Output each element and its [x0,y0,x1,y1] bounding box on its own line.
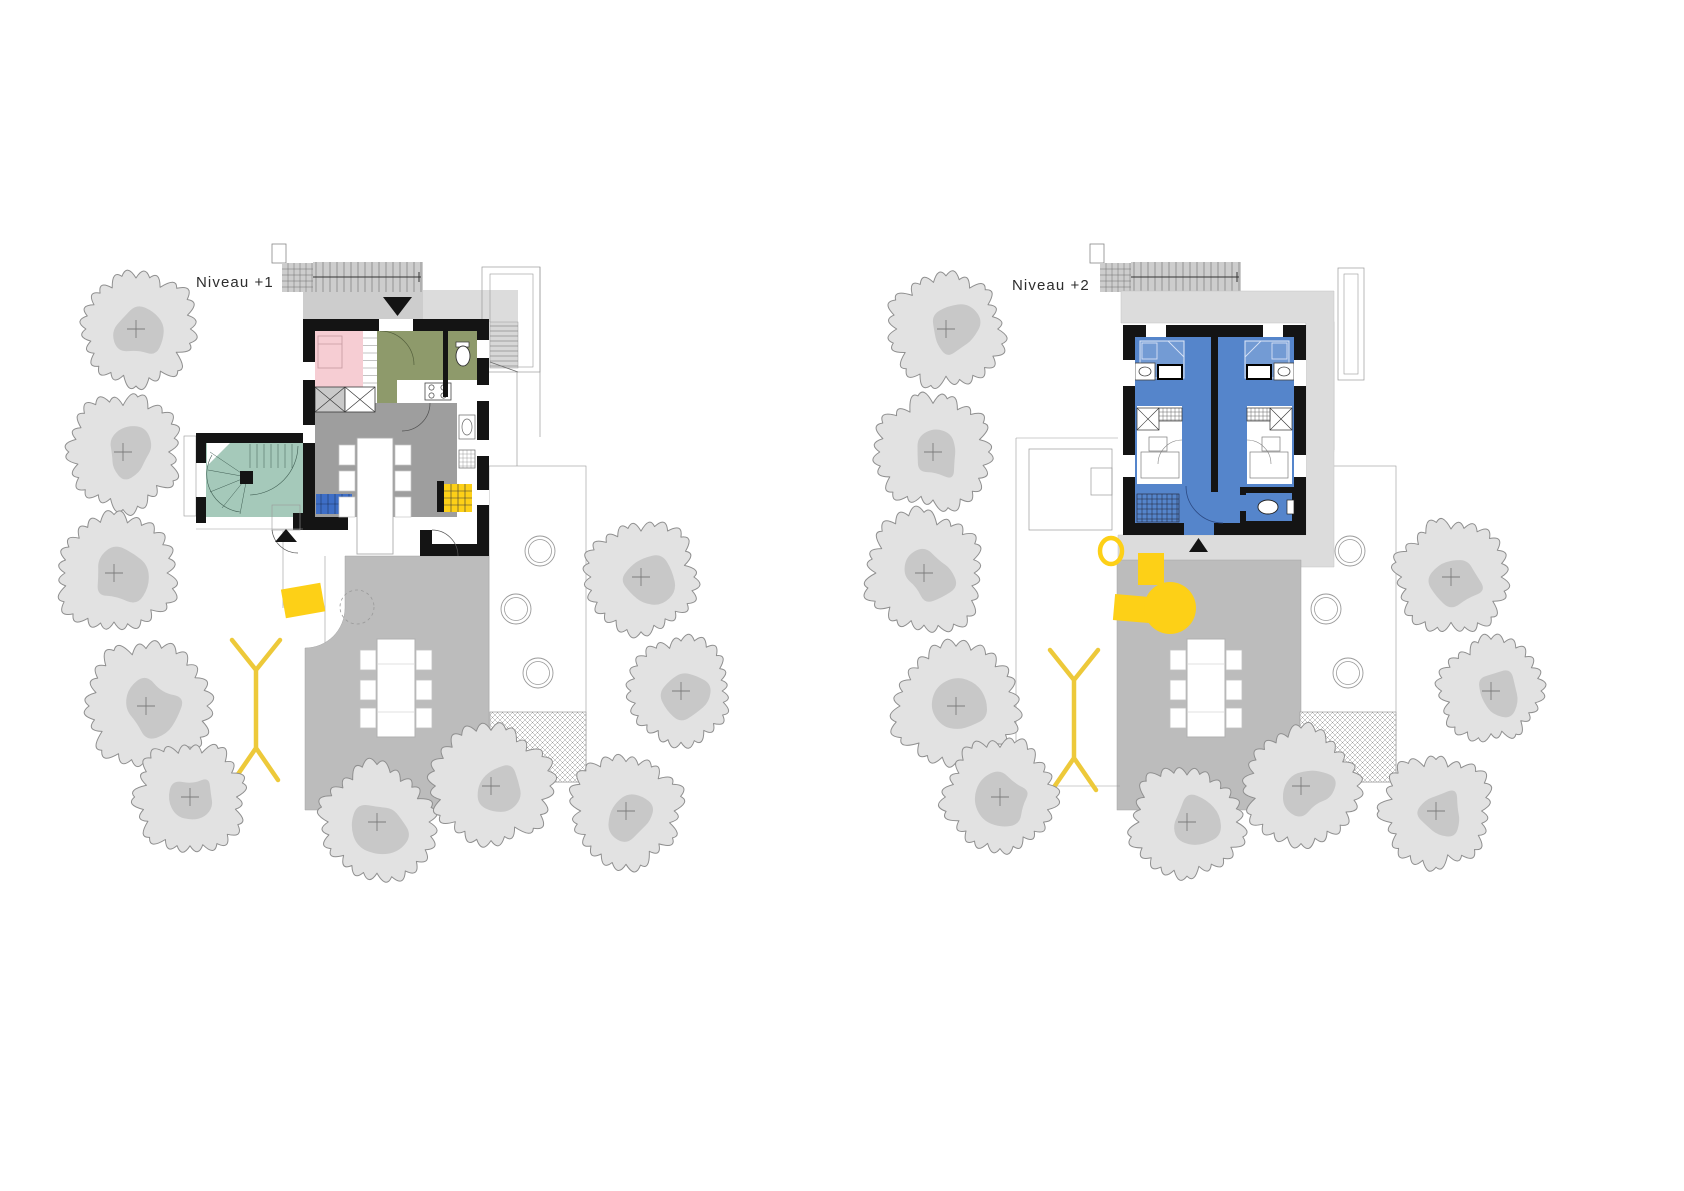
plan-label-niveau-1: Niveau +1 [196,274,274,291]
tree [1435,634,1546,742]
clothesline-play-structure [232,640,280,780]
tree [569,754,684,872]
site-plan-niveau-1 [58,244,728,882]
bathroom [1240,487,1298,527]
clothesline-play-structure [1050,650,1098,790]
site-plan-niveau-2 [864,244,1546,880]
plan-label-niveau-2: Niveau +2 [1012,277,1090,294]
storage-boxes [315,387,375,412]
architectural-site-plan-drawing: Niveau +1 Niveau +2 [0,0,1684,1191]
work-room-right [1247,406,1292,484]
room-pink [315,331,363,387]
tree [80,270,197,389]
lower-level-reference-outline [1016,438,1120,786]
tree [1391,518,1509,631]
stepping-stones [501,536,555,688]
outdoor-dining-table [1170,639,1242,737]
tree [626,634,729,748]
tree [58,511,177,630]
work-room-left [1137,406,1182,484]
tree [583,522,700,638]
building-niveau-2 [1123,325,1306,552]
outdoor-dining-table [360,639,432,737]
closet [363,331,377,387]
tree [65,394,179,516]
stair-tower [184,433,303,553]
tree [131,744,246,852]
tree [888,271,1007,389]
tree [873,392,993,511]
stairs-down-yellow [437,481,472,512]
building-niveau-1 [303,319,489,556]
tree [864,506,981,632]
tree [1377,756,1492,871]
entrance-arrow-icon [275,529,297,542]
